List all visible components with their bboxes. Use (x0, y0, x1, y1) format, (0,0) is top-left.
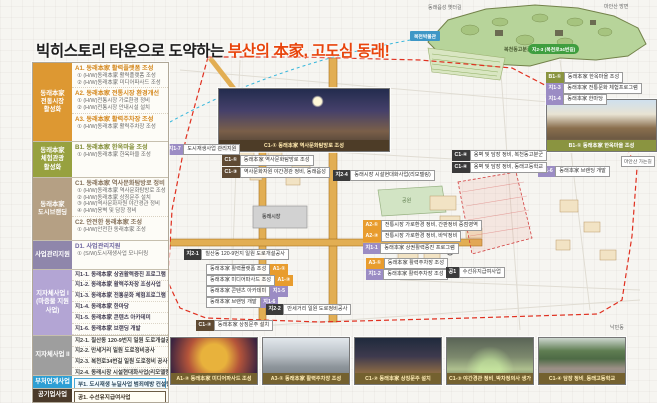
map-chip: A1-②동래本家 미디어파사드 조성 (206, 275, 293, 286)
map-chip: 지1-6동래本家 브랜딩 개발 (538, 166, 610, 177)
legend-category: 공기업사업 (33, 389, 72, 402)
legend-row: 지1-3. 동래本家 전통문화 체험프로그램 (72, 292, 168, 303)
legend-row: 지1-5. 동래本家 콘텐츠 아카데미 (72, 313, 168, 324)
legend-group-public-corp: 공기업사업 공1. 수선유지급여사업 (33, 389, 168, 402)
legend-row: 지2-4. 동래시장 시설현대화사업(리모델링) (72, 368, 168, 375)
map-chip: 지1-1동래本家 상권활력증진 프로그램 (363, 243, 459, 254)
map-chip: C1-④옹벽 및 담장 정비, 동래고등학교 (452, 162, 547, 173)
map-chip: A1-①동래本家 활력플랫폼 조성 (206, 264, 288, 275)
project-legend: 동래本家 전통시장 활성화 A1. 동래本家 활력플랫폼 조성 ① (H/W)동… (32, 62, 169, 403)
market-label: 동래시장 (262, 213, 280, 220)
photo-caption: C1-① 동래本家 역사문화탐방로 조성 (219, 140, 389, 151)
road-project-pill: 지2-3 (복천로34번길) (528, 44, 579, 54)
legend-category: 지자체사업 II (33, 336, 72, 375)
legend-row: 공1. 수선유지급여사업 (74, 391, 166, 403)
photo-parking: A3-① 동래本家 활력주차장 조성 (262, 337, 350, 385)
map-chip: C1-①동래本家 역사문화탐방로 조성 (222, 155, 314, 166)
map-chip: A2-①전통시장 가로환경 정비, 간판정비 중점영역 (363, 220, 482, 231)
urban-regeneration-poster: { "title": { "black": "빅히스토리 타운으로 도약하는 "… (0, 0, 657, 403)
photo-caption: A1-② 동래本家 미디어파사드 조성 (171, 373, 257, 384)
legend-group-branding: 동래本家 도시브랜딩 C1. 동래本家 역사문화탐방로 정비 ① (H/W)동래… (33, 178, 168, 241)
legend-row: 부1. 도시재생 뉴딜사업 범죄예방 컨설팅 (74, 378, 166, 389)
legend-item: C2. 안전한 동래本家 조성 ① (H/W)안전한 동래本家 조성 (72, 217, 168, 235)
photo-night-lighting: C1-③ 야간경관 정비_박차정의사 생가 (446, 337, 534, 385)
title-prefix: 빅히스토리 타운으로 도약하는 (36, 43, 228, 60)
photo-caption: C1-④ 담장 정비_동래고등학교 (539, 373, 625, 384)
photo-wall-improvement: C1-④ 담장 정비_동래고등학교 (538, 337, 626, 385)
nakmin-label: 낙민동 (610, 324, 624, 331)
maansan-way-label: 마안산 가는길 (621, 156, 655, 167)
legend-item: A1. 동래本家 활력플랫폼 조성 ① (H/W)동래本家 활력플랫폼 조성 ②… (72, 63, 168, 88)
map-chip: A2-②전통시장 가로환경 정비, 바닥정비 (363, 231, 461, 242)
legend-item: A3. 동래本家 활력주차장 조성 ① (H/W)동래本家 활력주차장 조성 (72, 114, 168, 132)
old-wall-path-label: 동래읍성 옛터길 (428, 4, 462, 11)
legend-item: B1. 동래本家 한옥마을 조성 ① (H/W)동래本家 한옥마을 조성 (72, 142, 168, 160)
legend-category: 동래本家 체험관광 활성화 (33, 142, 72, 177)
photo-caption: C1-③ 야간경관 정비_박차정의사 생가 (447, 373, 533, 384)
legend-group-ministry: 부처연계사업 부1. 도시재생 뉴딜사업 범죄예방 컨설팅 (33, 376, 168, 389)
legend-group-market: 동래本家 전통시장 활성화 A1. 동래本家 활력플랫폼 조성 ① (H/W)동… (33, 63, 168, 142)
map-chip: 지1-5동래本家 콘텐츠 아카데미 (206, 286, 288, 297)
legend-item: D1. 사업관리지원 ① (S/W)도시재생사업 모니터링 (72, 241, 168, 259)
map-chip: B1-①동래本家 한옥마을 조성 (546, 72, 623, 83)
legend-category: 사업관리지원 (33, 241, 72, 269)
title-highlight: 부산의 本家, 고도심 동래! (228, 43, 389, 60)
legend-item: A2. 동래本家 전통시장 환경개선 ① (H/W)전통시장 가로환경 정비 ②… (72, 88, 168, 113)
legend-row: 지1-4. 동래本家 한마당 (72, 302, 168, 313)
legend-category: 부처연계사업 (33, 376, 72, 388)
map-chip: C1-④옹벽 및 담장 정비, 복천동고분군 (452, 150, 547, 161)
photo-media-facade: A1-② 동래本家 미디어파사드 조성 (170, 337, 258, 385)
map-chip: 지1-2동래本家 활력주차장 조성 (366, 269, 448, 280)
legend-group-management: 사업관리지원 D1. 사업관리지원 ① (S/W)도시재생사업 모니터링 (33, 241, 168, 270)
legend-category: 동래本家 도시브랜딩 (33, 178, 72, 240)
legend-row: 지2-3. 복천로34번길 일원 도로정비 공사 (72, 358, 168, 369)
legend-row: 지1-6. 동래本家 브랜딩 개발 (72, 324, 168, 335)
map-chip: 지1-4동래本家 한마당 (546, 94, 607, 105)
legend-row: 지1-1. 동래本家 상권활력증진 프로그램 (72, 270, 168, 281)
photo-heritage-trail: C1-① 동래本家 역사문화탐방로 조성 (218, 88, 390, 152)
map-chip: 지2-1칠산동 120-9번지 일원 도로개설공사 (184, 249, 289, 260)
map-chip: A3-①동래本家 활력주차장 조성 (366, 258, 448, 269)
photo-caption: A3-① 동래本家 활력주차장 조성 (263, 373, 349, 384)
map-chip: 지2-2만세거리 일원 도로정비공사 (266, 304, 351, 315)
photo-hanok-village: B1-① 동래本家 한옥마을 조성 (546, 99, 657, 152)
map-chip: C1-②동래本家 상징문주 설치 (196, 320, 273, 331)
legend-item: C1. 동래本家 역사문화탐방로 정비 ① (H/W)동래本家 역사문화탐방로 … (72, 178, 168, 217)
map-chip: 지1-3동래本家 전통문화 체험프로그램 (546, 83, 642, 94)
legend-row: 지2-1. 칠산동 120-9번지 일원 도로개설공사 (72, 336, 168, 347)
legend-group-local1: 지자체사업 I (마중물 지원사업) 지1-1. 동래本家 상권활력증진 프로그… (33, 270, 168, 336)
legend-category: 동래本家 전통시장 활성화 (33, 63, 72, 141)
legend-category: 지자체사업 I (마중물 지원사업) (33, 270, 72, 335)
photo-caption: C1-② 동래本家 상징문주 설치 (355, 373, 441, 384)
map-chip: C1-③역사문화자원 야간경관 정비, 동래읍성 (222, 167, 330, 178)
map-chip: 지1-7도시재생사업 관리지원 (166, 144, 240, 155)
park-label: 공원 (402, 197, 411, 204)
museum-label: 복천박물관 (410, 31, 440, 41)
maansan-label: 마안산 방면 (604, 3, 628, 10)
legend-group-tourism: 동래本家 체험관광 활성화 B1. 동래本家 한옥마을 조성 ① (H/W)동래… (33, 142, 168, 178)
map-chip: 지2-4동래시장 시설현대화사업(리모델링) (333, 170, 435, 181)
photo-caption: B1-① 동래本家 한옥마을 조성 (547, 140, 656, 151)
map-chip: 공1수선유지급여사업 (446, 267, 505, 278)
legend-row: 지2-2. 만세거리 일원 도로정비공사 (72, 347, 168, 358)
legend-group-local2: 지자체사업 II 지2-1. 칠산동 120-9번지 일원 도로개설공사 지2-… (33, 336, 168, 376)
page-title: 빅히스토리 타운으로 도약하는 부산의 本家, 고도심 동래! (36, 39, 389, 61)
photo-symbol-gate: C1-② 동래本家 상징문주 설치 (354, 337, 442, 385)
legend-row: 지1-2. 동래本家 활력주차장 조성사업 (72, 281, 168, 292)
